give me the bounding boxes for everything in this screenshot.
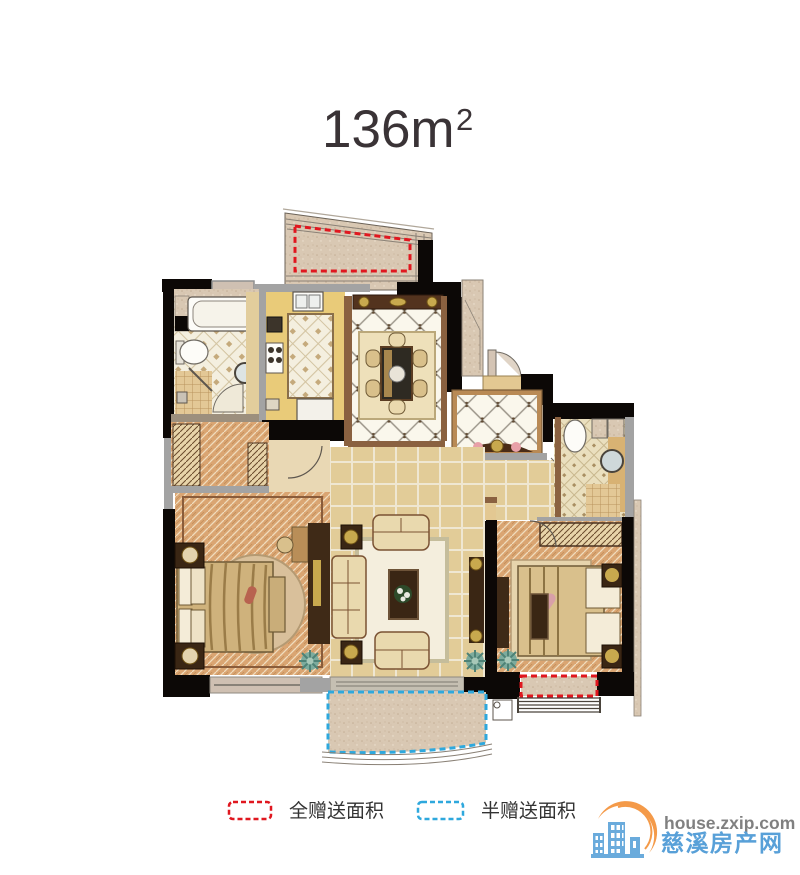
svg-text:慈溪房产网: 慈溪房产网 <box>661 830 784 856</box>
svg-text:2: 2 <box>456 102 473 137</box>
svg-text:136m: 136m <box>322 100 455 159</box>
svg-text:半赠送面积: 半赠送面积 <box>481 800 576 822</box>
svg-text:全赠送面积: 全赠送面积 <box>289 800 384 822</box>
